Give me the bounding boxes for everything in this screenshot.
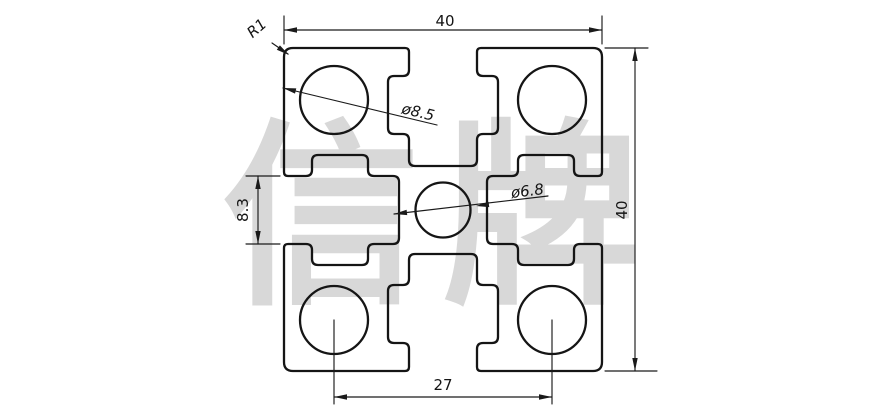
dim-label-top-width: 40 — [435, 12, 454, 30]
dim-label-hole-spacing: 27 — [433, 376, 452, 394]
dim-label-slot-opening: 8.3 — [234, 198, 252, 222]
dim-label-right-height: 40 — [613, 200, 631, 219]
watermark-text: 信牌 — [222, 102, 662, 333]
drawing-canvas: 信牌 40 40 8.3 27 R1 ø8.5 ø6.8 — [0, 0, 880, 420]
dim-label-corner-radius: R1 — [243, 15, 270, 42]
profile-technical-drawing: 信牌 40 40 8.3 27 R1 ø8.5 ø6.8 — [0, 0, 880, 420]
